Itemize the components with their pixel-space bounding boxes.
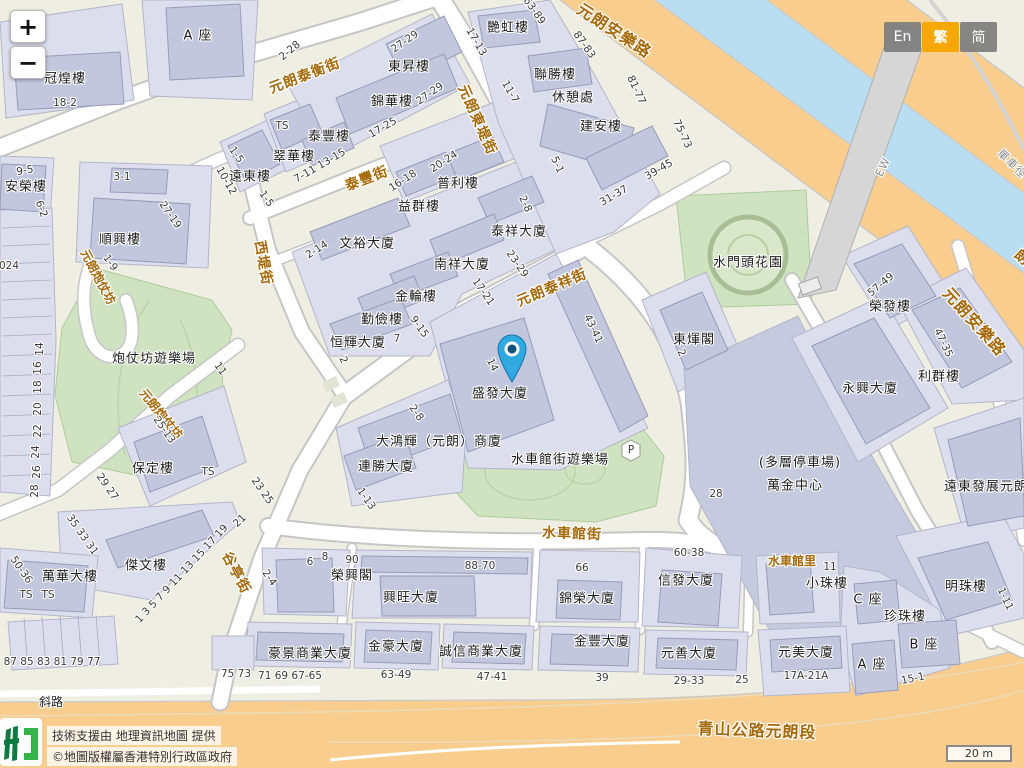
lang-button-traditional[interactable]: 繁 xyxy=(922,22,959,52)
geoinfo-logo xyxy=(0,718,42,766)
parking-icon xyxy=(622,440,640,461)
attribution: 技術支援由 地理資訊地圖 提供 ©地圖版權屬香港特別行政區政府 xyxy=(0,718,237,766)
lang-button-simplified[interactable]: 简 xyxy=(960,22,997,52)
scale-bar: 20 m xyxy=(946,745,1012,762)
attribution-line2: ©地圖版權屬香港特別行政區政府 xyxy=(47,747,237,766)
zoom-in-button[interactable]: + xyxy=(10,10,46,43)
map-viewport: 元朗泰衡街泰豐街元朗東堤街元朗泰祥街西堤街元朗炮仗坊元朗炮仗坊谷亭街水車館街水車… xyxy=(0,0,1024,768)
attribution-line1: 技術支援由 地理資訊地圖 提供 xyxy=(47,726,221,745)
zoom-out-button[interactable]: − xyxy=(10,46,46,79)
location-pin[interactable] xyxy=(495,334,529,388)
lang-button-en[interactable]: En xyxy=(884,22,921,52)
zoom-control: + − xyxy=(10,10,46,82)
pin-icon xyxy=(495,334,529,384)
language-switcher: En 繁 简 xyxy=(884,22,997,52)
